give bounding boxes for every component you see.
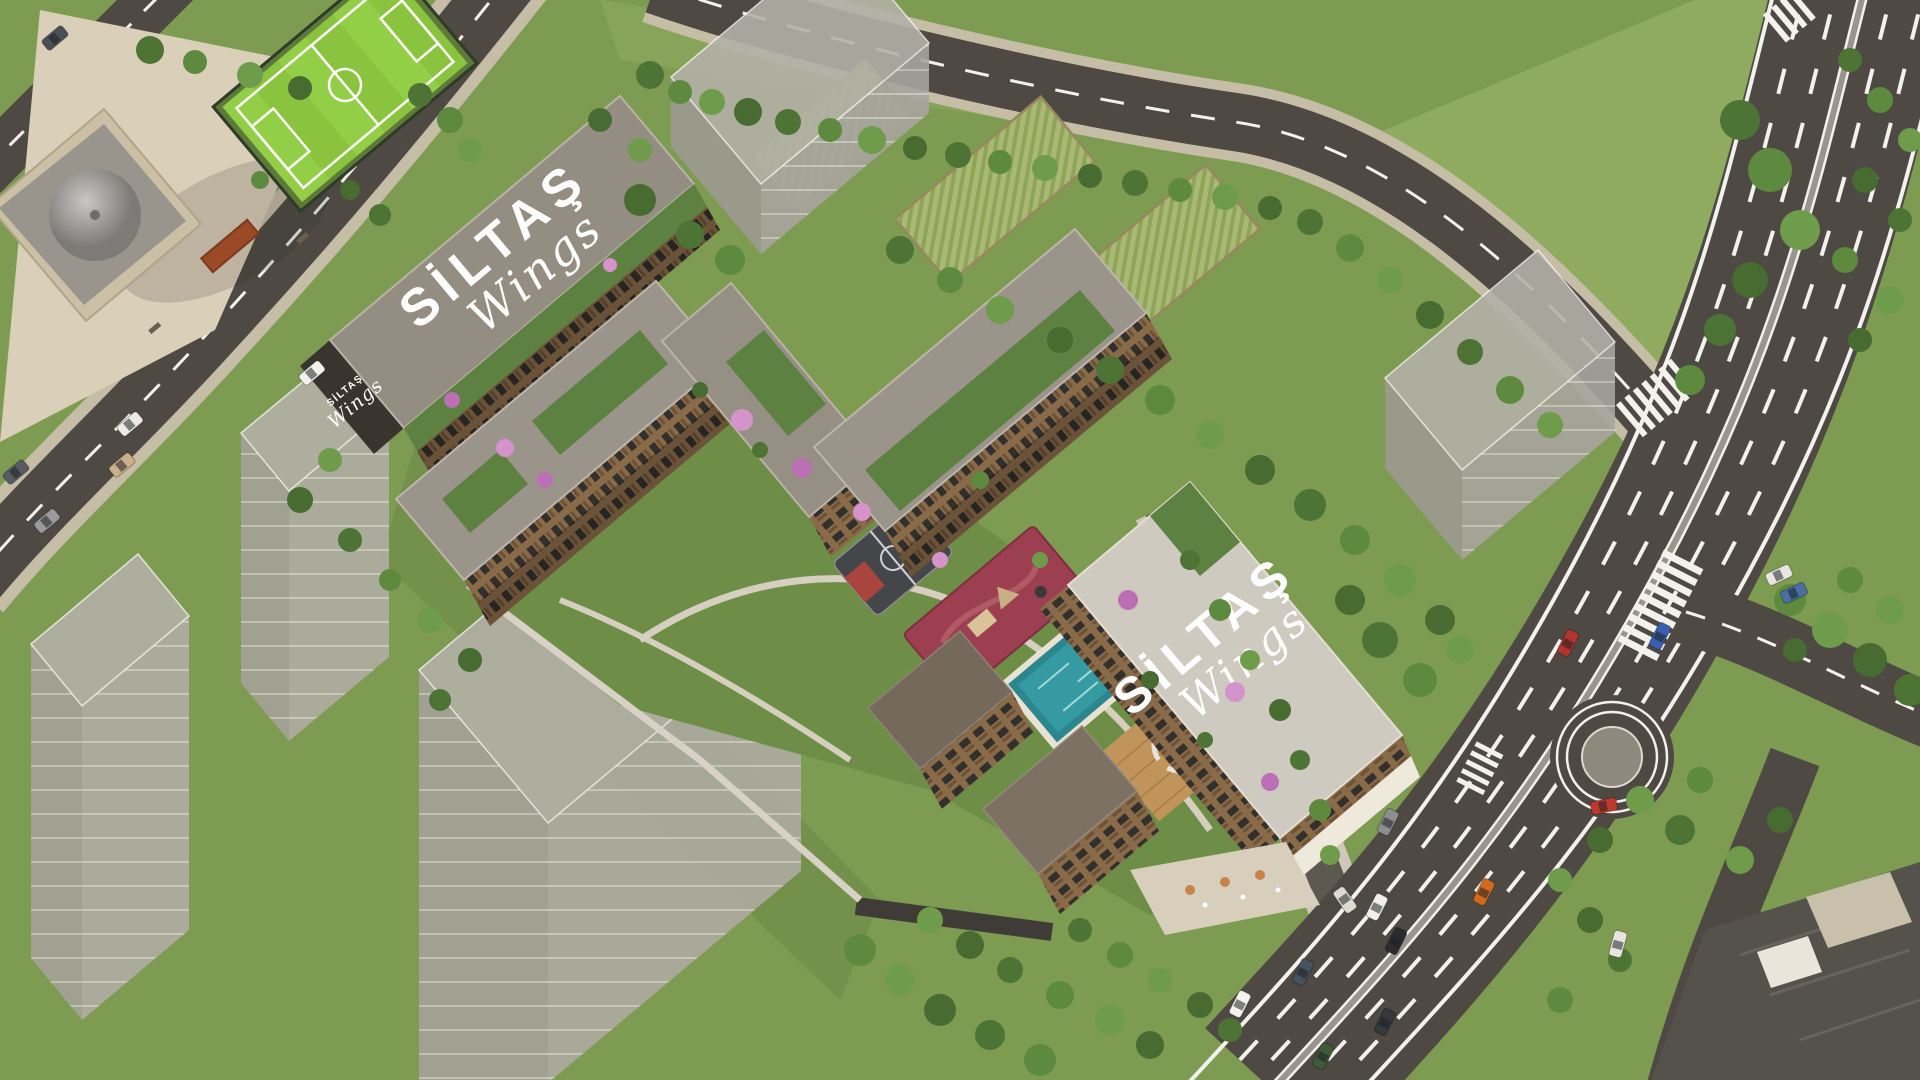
tree: [1732, 262, 1768, 298]
tree: [1783, 638, 1807, 662]
tree: [924, 994, 956, 1026]
tree: [1812, 612, 1848, 648]
tree: [971, 471, 989, 489]
tree: [997, 957, 1023, 983]
tree: [183, 50, 207, 74]
tree: [1848, 328, 1872, 352]
tree: [1457, 339, 1483, 365]
tree: [1309, 799, 1331, 821]
tree: [287, 487, 313, 513]
tree: [1888, 208, 1912, 232]
tree: [715, 245, 745, 275]
tree: [818, 118, 842, 142]
tree: [408, 83, 432, 107]
tree: [1767, 807, 1793, 833]
tree: [417, 607, 443, 633]
blossom-tree: [853, 503, 871, 521]
tree: [1362, 622, 1398, 658]
tree: [1838, 48, 1862, 72]
tree: [858, 126, 886, 154]
tree: [1335, 585, 1365, 615]
tree: [1626, 786, 1654, 814]
blossom-tree: [932, 552, 948, 568]
tree: [136, 36, 164, 64]
tree: [1320, 845, 1340, 865]
tree: [844, 934, 876, 966]
aerial-render: SİLTAŞ Wings SİLTAŞ Wings: [0, 0, 1920, 1080]
tree: [734, 98, 762, 126]
tree: [1665, 815, 1695, 845]
blossom-tree: [792, 458, 812, 478]
tree: [1837, 567, 1863, 593]
blossom-tree: [444, 392, 460, 408]
tree: [1876, 596, 1904, 624]
tree: [1587, 827, 1613, 853]
blossom-tree: [1261, 773, 1279, 791]
tree: [379, 569, 401, 591]
tree: [975, 1020, 1005, 1050]
tree: [1107, 942, 1133, 968]
tree: [692, 382, 708, 398]
roundabout-island: [1582, 727, 1642, 787]
blossom-tree: [731, 409, 753, 431]
blossom-tree: [603, 258, 617, 272]
tree: [437, 107, 463, 133]
tree: [988, 150, 1012, 174]
tree: [1218, 1018, 1242, 1042]
tree: [1832, 247, 1858, 273]
tree: [1537, 412, 1563, 438]
blossom-tree: [537, 472, 553, 488]
tree: [429, 689, 451, 711]
tree: [1197, 732, 1213, 748]
tree: [251, 171, 269, 189]
tree: [1196, 421, 1224, 449]
tree: [1024, 1044, 1056, 1076]
tree: [1403, 663, 1437, 697]
tree: [624, 184, 656, 216]
tree: [1141, 671, 1159, 689]
tree: [1720, 100, 1760, 140]
tree: [237, 62, 263, 88]
tree: [1136, 1031, 1164, 1059]
tree: [1032, 552, 1048, 568]
tree: [636, 61, 664, 89]
blossom-tree: [496, 439, 514, 457]
tree: [458, 648, 482, 672]
tree: [752, 442, 768, 458]
tree: [1187, 992, 1213, 1018]
tree: [1340, 525, 1370, 555]
tree: [1095, 1005, 1125, 1035]
tree: [937, 267, 963, 293]
tree: [1425, 605, 1455, 635]
tree: [1577, 907, 1603, 933]
tree: [886, 236, 914, 264]
tree: [1852, 167, 1878, 193]
scene-svg: SİLTAŞ Wings SİLTAŞ Wings: [0, 0, 1920, 1080]
tree: [986, 296, 1014, 324]
tree: [288, 76, 312, 100]
tree: [1240, 650, 1260, 670]
tree: [1294, 489, 1326, 521]
tree: [1876, 286, 1904, 314]
blossom-tree: [1118, 590, 1138, 610]
tree: [885, 965, 915, 995]
tree: [340, 180, 360, 200]
tree: [1446, 636, 1474, 664]
tree: [945, 142, 971, 168]
tree: [1290, 750, 1310, 770]
tree: [1180, 550, 1200, 570]
tree: [1675, 365, 1705, 395]
tree: [1209, 599, 1231, 621]
tree: [338, 528, 362, 552]
tree: [1548, 868, 1572, 892]
tree: [1096, 356, 1124, 384]
tree: [1726, 846, 1754, 874]
tree: [1032, 155, 1058, 181]
tree: [1168, 178, 1192, 202]
tree: [1416, 301, 1444, 329]
tree: [1068, 918, 1092, 942]
tree: [1687, 767, 1713, 793]
tree: [676, 221, 704, 249]
tree: [1258, 196, 1282, 220]
tree: [699, 89, 725, 115]
tree: [588, 108, 612, 132]
tree: [318, 448, 342, 472]
tree: [1297, 209, 1323, 235]
tree: [1212, 184, 1238, 210]
tree: [1269, 699, 1291, 721]
tree: [1748, 148, 1792, 192]
tree: [1078, 164, 1102, 188]
tree: [1853, 643, 1887, 677]
tree: [1496, 376, 1524, 404]
tree: [1547, 987, 1573, 1013]
tree: [1122, 170, 1148, 196]
tree: [775, 109, 801, 135]
tree: [1377, 267, 1403, 293]
tree: [1384, 564, 1416, 596]
tree: [369, 204, 391, 226]
tree: [1780, 210, 1820, 250]
tree: [1245, 455, 1275, 485]
tree: [628, 138, 652, 162]
tree: [1047, 327, 1073, 353]
tree: [1148, 968, 1172, 992]
tree: [917, 907, 943, 933]
tree: [1704, 314, 1736, 346]
tree: [668, 80, 692, 104]
tree: [956, 931, 984, 959]
tree: [458, 138, 482, 162]
blossom-tree: [1225, 682, 1245, 702]
tree: [1046, 981, 1074, 1009]
tree: [1336, 234, 1364, 262]
tree: [1145, 385, 1175, 415]
tree: [903, 136, 927, 160]
tree: [1867, 87, 1893, 113]
dome-finial: [90, 210, 100, 220]
